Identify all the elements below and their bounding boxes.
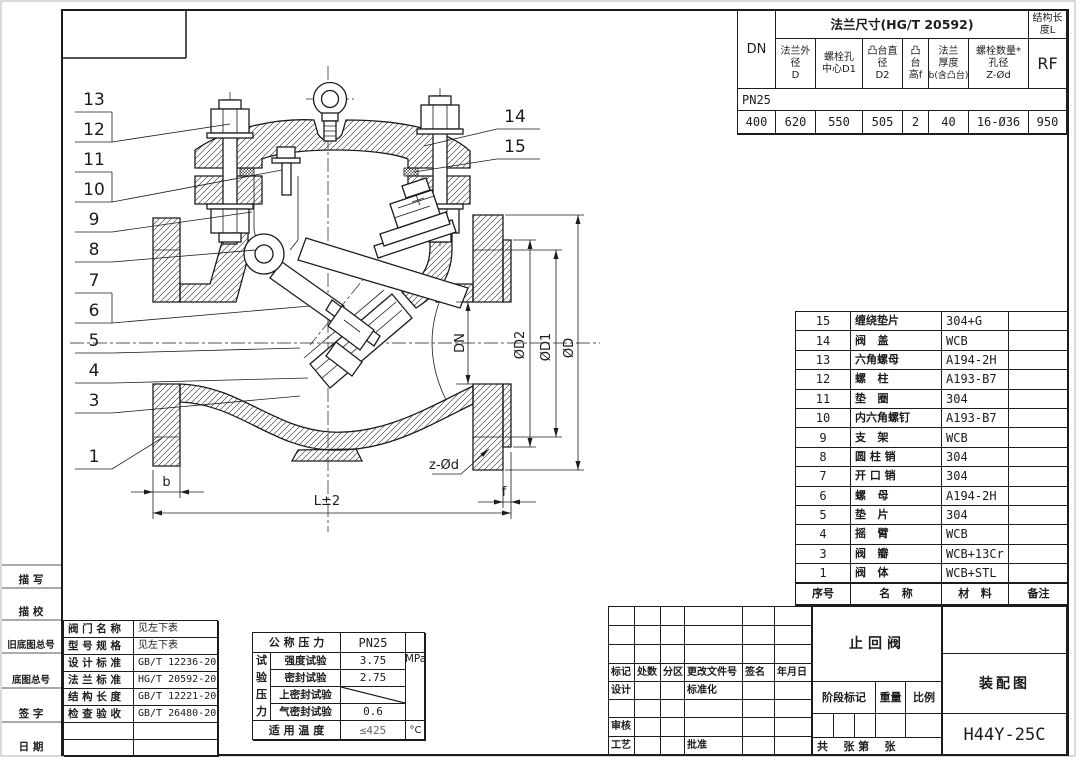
revision-cell — [609, 626, 635, 645]
revision-cell — [661, 645, 685, 664]
part-name-cell: 垫 圈 — [851, 390, 942, 409]
revision-cell — [743, 700, 775, 718]
callout-11: 11 — [77, 150, 111, 170]
part-material-cell: A193-B7 — [942, 370, 1009, 389]
header-bolt-circle: 螺栓孔 中心D1 — [816, 39, 863, 89]
info-value-cell — [134, 740, 219, 757]
hdr-line: 螺栓数量* — [976, 46, 1021, 58]
revision-cell — [661, 718, 685, 737]
part-name-cell: 阀 盖 — [851, 331, 942, 350]
part-material-cell: WCB+13Cr — [942, 545, 1009, 564]
part-name-cell: 支 架 — [851, 428, 942, 447]
part-note-cell — [1009, 467, 1069, 486]
header-flange-od: 法兰外 径 D — [776, 39, 816, 89]
part-note-cell — [1009, 428, 1069, 447]
part-name-cell: 摇 臂 — [851, 525, 942, 544]
temp-unit: °C — [406, 721, 426, 741]
strength-test-value: 3.75 — [341, 653, 406, 670]
part-note-cell — [1009, 487, 1069, 506]
margin-label-base-no: 底图总号 — [0, 672, 62, 686]
revision-cell — [775, 607, 813, 626]
revision-cell — [609, 700, 635, 718]
callout-5: 5 — [77, 331, 111, 351]
struct-length-line1: 结构长 — [1033, 13, 1063, 25]
part-name-cell: 螺 柱 — [851, 370, 942, 389]
info-label-cell: 检 查 验 收 — [64, 706, 134, 723]
doc-type: 装配图 — [943, 654, 1067, 714]
revision-cell — [609, 607, 635, 626]
revision-cell — [635, 607, 661, 626]
part-material-cell: 304 — [942, 448, 1009, 467]
flange-size-table: DN 法兰尺寸(HG/T 20592) 结构长 度L 法兰外 径 D 螺栓孔 中… — [737, 10, 1068, 135]
revision-cell — [661, 682, 685, 700]
dim-d2-label: ØD2 — [514, 325, 528, 365]
margin-label-trace: 描 写 — [0, 572, 62, 587]
info-value-cell: 见左下表 — [134, 638, 219, 655]
part-no-cell: 12 — [796, 370, 851, 389]
part-name-cell: 内六角螺钉 — [851, 409, 942, 428]
drawing-no-box — [943, 607, 1067, 654]
part-no-cell: 13 — [796, 351, 851, 370]
revision-cell — [685, 626, 743, 645]
revision-cell — [635, 626, 661, 645]
hdr-line: 凸台直 — [868, 46, 898, 58]
dim-d-label: ØD — [563, 329, 577, 367]
scale-value-box — [906, 714, 943, 738]
revision-cell — [775, 645, 813, 664]
part-no-cell: 1 — [796, 564, 851, 583]
flange-value-l: 950 — [1029, 111, 1067, 134]
hdr-line: 法兰 — [939, 46, 959, 58]
dim-f-label: f — [494, 486, 514, 500]
part-no-cell: 3 — [796, 545, 851, 564]
revision-cell — [743, 645, 775, 664]
info-label-cell: 型 号 规 格 — [64, 638, 134, 655]
unit-mpa: MPa — [406, 653, 426, 721]
flange-value-dn: 400 — [738, 111, 776, 134]
title-block-right: 装配图 H44Y-25C — [942, 606, 1068, 755]
part-name-cell: 开 口 销 — [851, 467, 942, 486]
hdr-line: 法兰外 — [781, 46, 811, 58]
revision-cell: 审核 — [609, 718, 635, 737]
info-value-cell: HG/T 20592-2009 — [134, 672, 219, 689]
part-no-cell: 6 — [796, 487, 851, 506]
group-char: 试 — [256, 655, 267, 667]
part-name-cell: 垫 片 — [851, 506, 942, 525]
part-name-cell: 六角螺母 — [851, 351, 942, 370]
parts-list-footer: 序号 名 称 材 料 备注 — [795, 583, 1068, 606]
lifting-eye-bolt — [314, 83, 347, 142]
revision-cell — [775, 718, 813, 737]
stage-mark-label: 阶段标记 — [813, 682, 876, 714]
part-no-cell: 9 — [796, 428, 851, 447]
part-name-cell: 缠绕垫片 — [851, 312, 942, 331]
info-value-cell: 见左下表 — [134, 621, 219, 638]
sheet-count: 共 张 第 张 — [813, 738, 943, 756]
flange-dn-header: DN — [738, 11, 776, 89]
revision-cell: 处数 — [635, 664, 661, 682]
hdr-line: 台 — [911, 58, 921, 70]
callout-15: 15 — [498, 137, 532, 157]
part-note-cell — [1009, 506, 1069, 525]
callout-13: 13 — [77, 90, 111, 110]
revision-cell — [661, 607, 685, 626]
struct-length-line2: 度L — [1040, 25, 1056, 37]
part-note-cell — [1009, 351, 1069, 370]
parts-footer-name: 名 称 — [851, 584, 942, 605]
callout-10: 10 — [77, 180, 111, 200]
header-bolt-qty: 螺栓数量* 孔径 Z-Ød — [969, 39, 1029, 89]
info-label-cell — [64, 723, 134, 740]
callout-4: 4 — [77, 361, 111, 381]
part-material-cell: WCB — [942, 331, 1009, 350]
info-label-cell: 阀 门 名 称 — [64, 621, 134, 638]
callout-9: 9 — [77, 210, 111, 230]
revision-cell: 工艺 — [609, 737, 635, 755]
revision-cell — [775, 737, 813, 755]
gasket-left — [240, 168, 254, 176]
callout-3: 3 — [77, 391, 111, 411]
part-no-cell: 11 — [796, 390, 851, 409]
hinge-pin — [255, 245, 273, 263]
revision-cell — [743, 682, 775, 700]
revision-cell: 签名 — [743, 664, 775, 682]
drawing-sheet: 13 12 11 10 9 8 7 6 5 4 3 1 14 15 DN ØD2… — [0, 0, 1076, 757]
flange-table-title: 法兰尺寸(HG/T 20592) — [776, 11, 1029, 39]
part-name-cell: 螺 母 — [851, 487, 942, 506]
part-material-cell: WCB+STL — [942, 564, 1009, 583]
hdr-line: 径 — [791, 58, 801, 70]
air-seal-test-value: 0.6 — [341, 704, 406, 721]
part-material-cell: A194-2H — [942, 351, 1009, 370]
part-no-cell: 7 — [796, 467, 851, 486]
header-rf: RF — [1029, 39, 1067, 89]
flange-value-f: 2 — [903, 111, 929, 134]
struct-length-header: 结构长 度L — [1029, 11, 1067, 39]
callout-8: 8 — [77, 240, 111, 260]
callout-6: 6 — [77, 301, 111, 321]
revision-cell — [635, 700, 661, 718]
callout-12: 12 — [77, 120, 111, 140]
hdr-line: 厚度 — [939, 58, 959, 70]
info-value-cell — [134, 723, 219, 740]
part-note-cell — [1009, 312, 1069, 331]
hdr-line: 径 — [878, 58, 888, 70]
upper-seal-test-label: 上密封试验 — [271, 687, 341, 704]
part-no-cell: 5 — [796, 506, 851, 525]
revision-cell — [609, 645, 635, 664]
part-name-cell: 圆 柱 销 — [851, 448, 942, 467]
revision-cell: 标记 — [609, 664, 635, 682]
margin-label-old-no: 旧底图总号 — [0, 637, 62, 651]
revision-cell — [635, 718, 661, 737]
part-material-cell: A193-B7 — [942, 409, 1009, 428]
part-note-cell — [1009, 545, 1069, 564]
dim-l-label: L±2 — [295, 495, 359, 509]
weight-label: 重量 — [876, 682, 906, 714]
callout-1: 1 — [77, 447, 111, 467]
temp-label: 适 用 温 度 — [253, 721, 341, 741]
title-block-middle: 止回阀 阶段标记 重量 比例 共 张 第 张 — [812, 606, 942, 755]
revision-cell — [685, 645, 743, 664]
header-flange-thickness: 法兰 厚度 b(含凸台) — [929, 39, 969, 89]
revision-cell — [743, 718, 775, 737]
hdr-line: D2 — [875, 70, 889, 82]
info-value-cell: GB/T 26480-2011 — [134, 706, 219, 723]
temp-value: ≤425 — [341, 721, 406, 741]
dim-zd-label: z-Ød — [426, 459, 462, 473]
revision-cell: 年月日 — [775, 664, 813, 682]
hdr-line: D — [792, 70, 800, 82]
part-material-cell: WCB — [942, 428, 1009, 447]
part-material-cell: WCB — [942, 525, 1009, 544]
part-note-cell — [1009, 564, 1069, 583]
empty-cell — [406, 633, 426, 653]
group-char: 验 — [256, 672, 267, 684]
hdr-line: Z-Ød — [986, 70, 1011, 82]
part-note-cell — [1009, 390, 1069, 409]
part-no-cell: 10 — [796, 409, 851, 428]
hdr-line: 中心D1 — [822, 64, 856, 76]
flange-value-d: 620 — [776, 111, 816, 134]
dim-b-label: b — [153, 476, 180, 490]
revision-cell — [685, 718, 743, 737]
revision-cell — [635, 737, 661, 755]
revision-cell — [775, 682, 813, 700]
revision-cell: 标准化 — [685, 682, 743, 700]
revision-cell — [743, 626, 775, 645]
callout-7: 7 — [77, 271, 111, 291]
revision-cell: 更改文件号 — [685, 664, 743, 682]
part-no-cell: 8 — [796, 448, 851, 467]
group-char: 力 — [256, 706, 267, 718]
stage-mark-box — [855, 714, 876, 738]
hdr-line: b(含凸台) — [929, 70, 968, 82]
revision-cell — [635, 682, 661, 700]
revision-cell: 分区 — [661, 664, 685, 682]
hdr-line: 孔径 — [989, 58, 1009, 70]
part-note-cell — [1009, 370, 1069, 389]
part-name-cell: 阀 体 — [851, 564, 942, 583]
dim-d1-label: ØD1 — [540, 327, 554, 367]
weight-value-box — [876, 714, 906, 738]
seal-test-value: 2.75 — [341, 670, 406, 687]
part-note-cell — [1009, 448, 1069, 467]
hdr-line: 凸 — [911, 46, 921, 58]
parts-footer-no: 序号 — [796, 584, 851, 605]
callout-14: 14 — [498, 107, 532, 127]
nominal-pressure-label: 公 称 压 力 — [253, 633, 341, 653]
product-name: 止回阀 — [813, 607, 943, 682]
strength-test-label: 强度试验 — [271, 653, 341, 670]
test-pressure-group-label: 试 验 压 力 — [253, 653, 271, 721]
info-label-cell — [64, 740, 134, 757]
revision-cell — [743, 737, 775, 755]
flange-value-d2: 505 — [863, 111, 903, 134]
revision-cell: 批准 — [685, 737, 743, 755]
part-no-cell: 4 — [796, 525, 851, 544]
revision-cell: 设计 — [609, 682, 635, 700]
header-rf-height: 凸 台 高f — [903, 39, 929, 89]
part-no-cell: 15 — [796, 312, 851, 331]
stage-mark-box — [834, 714, 855, 738]
header-rf-diameter: 凸台直 径 D2 — [863, 39, 903, 89]
revision-table: 标记 处数 分区 更改文件号 签名 年月日 设计 标准化 — [608, 606, 812, 755]
flange-value-b: 40 — [929, 111, 969, 134]
part-material-cell: 304 — [942, 467, 1009, 486]
stage-mark-box — [813, 714, 834, 738]
revision-cell — [661, 700, 685, 718]
part-material-cell: 304+G — [942, 312, 1009, 331]
pressure-table: 公 称 压 力 PN25 试 验 压 力 强度试验 3.75 MPa 密封试验 … — [252, 632, 425, 740]
dim-dn-label: DN — [454, 323, 468, 363]
parts-footer-material: 材 料 — [942, 584, 1009, 605]
part-note-cell — [1009, 525, 1069, 544]
revision-cell — [661, 737, 685, 755]
part-no-cell: 14 — [796, 331, 851, 350]
valve-info-table: 阀 门 名 称 见左下表 型 号 规 格 见左下表 设 计 标 准 GB/T 1… — [63, 620, 218, 756]
group-char: 压 — [256, 689, 267, 701]
info-label-cell: 法 兰 标 准 — [64, 672, 134, 689]
parts-footer-note: 备注 — [1009, 584, 1069, 605]
upper-seal-test-value — [341, 687, 406, 704]
revision-cell — [743, 607, 775, 626]
part-note-cell — [1009, 331, 1069, 350]
model-number: H44Y-25C — [943, 714, 1067, 756]
revision-cell — [661, 626, 685, 645]
revision-cell — [775, 626, 813, 645]
flange-value-zd: 16-Ø36 — [969, 111, 1029, 134]
margin-label-signature: 签 字 — [0, 706, 62, 721]
revision-cell — [635, 645, 661, 664]
part-note-cell — [1009, 409, 1069, 428]
part-material-cell: 304 — [942, 506, 1009, 525]
part-material-cell: A194-2H — [942, 487, 1009, 506]
nominal-pressure-value: PN25 — [341, 633, 406, 653]
revision-cell — [685, 700, 743, 718]
hdr-line: 螺栓孔 — [824, 52, 854, 64]
scale-label: 比例 — [906, 682, 943, 714]
margin-label-check: 描 校 — [0, 604, 62, 619]
pn-row: PN25 — [738, 89, 1067, 111]
part-material-cell: 304 — [942, 390, 1009, 409]
part-name-cell: 阀 瓣 — [851, 545, 942, 564]
hdr-line: 高f — [909, 70, 923, 82]
info-value-cell: GB/T 12236-2007 — [134, 655, 219, 672]
info-label-cell: 结 构 长 度 — [64, 689, 134, 706]
revision-cell — [685, 607, 743, 626]
info-label-cell: 设 计 标 准 — [64, 655, 134, 672]
info-value-cell: GB/T 12221-2005 — [134, 689, 219, 706]
flange-value-d1: 550 — [816, 111, 863, 134]
revision-cell — [775, 700, 813, 718]
parts-list-table: 15 缠绕垫片 304+G 14 阀 盖 WCB 13 六角螺母 A194-2H… — [795, 311, 1068, 583]
air-seal-test-label: 气密封试验 — [271, 704, 341, 721]
margin-label-date: 日 期 — [0, 739, 62, 754]
seal-test-label: 密封试验 — [271, 670, 341, 687]
